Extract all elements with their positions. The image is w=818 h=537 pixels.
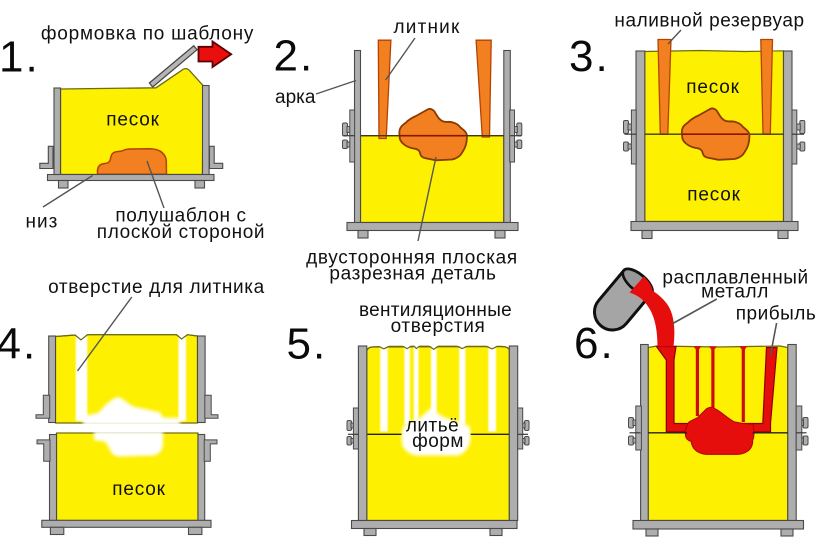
svg-text:отверстие для литника: отверстие для литника [48, 277, 265, 298]
svg-text:песок: песок [686, 77, 739, 98]
svg-text:разрезная деталь: разрезная деталь [329, 264, 496, 285]
svg-text:1.: 1. [0, 33, 40, 82]
svg-text:арка: арка [275, 87, 316, 108]
svg-text:наливной резервуар: наливной резервуар [614, 11, 804, 32]
svg-text:2.: 2. [274, 32, 315, 81]
svg-text:прибыль: прибыль [736, 304, 817, 325]
svg-text:литник: литник [393, 17, 460, 38]
svg-text:песок: песок [112, 479, 165, 500]
svg-text:плоской стороной: плоской стороной [97, 222, 265, 243]
svg-text:3.: 3. [569, 32, 610, 81]
svg-text:формовка по шаблону: формовка по шаблону [41, 24, 254, 45]
svg-text:металл: металл [701, 282, 769, 303]
svg-text:низ: низ [26, 212, 59, 233]
svg-text:форм: форм [412, 431, 464, 452]
svg-text:песок: песок [687, 185, 740, 206]
svg-text:отверстия: отверстия [391, 316, 486, 337]
svg-text:5.: 5. [287, 320, 328, 369]
svg-text:песок: песок [106, 110, 159, 131]
svg-text:4.: 4. [0, 320, 37, 369]
